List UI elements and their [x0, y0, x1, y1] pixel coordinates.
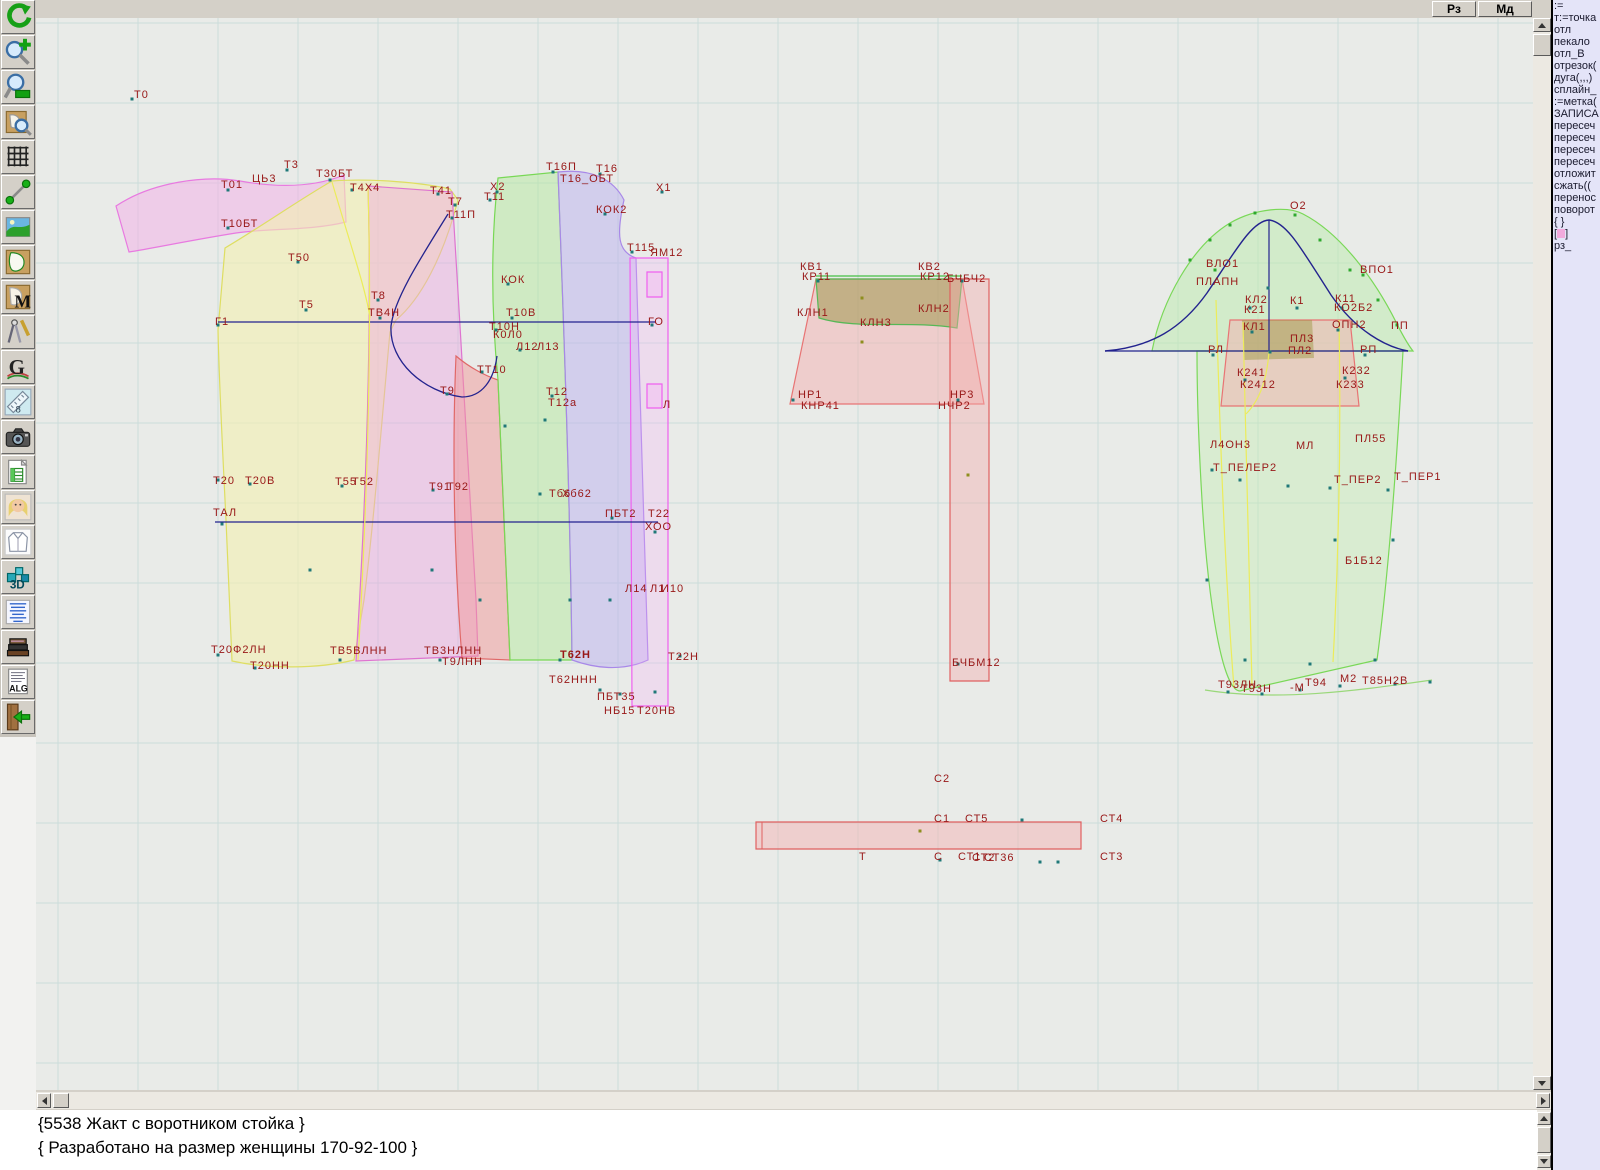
- pattern-point[interactable]: [1254, 212, 1257, 215]
- pattern-point[interactable]: [221, 523, 224, 526]
- pattern-point[interactable]: [1251, 331, 1254, 334]
- pattern-point[interactable]: [939, 859, 942, 862]
- exit-button[interactable]: [1, 700, 35, 734]
- sheet-icon: [4, 458, 32, 486]
- command-item[interactable]: :=: [1553, 0, 1600, 12]
- scroll-down-button[interactable]: [1533, 1076, 1551, 1090]
- pattern-point[interactable]: [249, 483, 252, 486]
- svg-text:G: G: [9, 355, 25, 379]
- pattern-point[interactable]: [861, 297, 864, 300]
- drawing-canvas[interactable]: Т0Т3Т30БТЦЬ3Т01Т4Х4Т41Т7Т10БТТ50Т5Т8ТВ4Н…: [36, 18, 1534, 1090]
- arrow-right-icon: [1541, 1097, 1546, 1105]
- pattern-point[interactable]: [1337, 329, 1340, 332]
- pattern-point[interactable]: [1387, 489, 1390, 492]
- camera-icon: [4, 423, 32, 451]
- pattern-point[interactable]: [489, 199, 492, 202]
- portrait-button[interactable]: [1, 490, 35, 524]
- pattern-point[interactable]: [479, 599, 482, 602]
- pattern-point[interactable]: [1377, 299, 1380, 302]
- pattern-point[interactable]: [1349, 269, 1352, 272]
- pattern-point[interactable]: [1429, 681, 1432, 684]
- command-item[interactable]: рз_: [1553, 240, 1600, 252]
- pattern-point[interactable]: [604, 213, 607, 216]
- pattern-point[interactable]: [544, 419, 547, 422]
- arrow-down-icon: [1538, 1081, 1546, 1086]
- command-panel: :=т:=точкаотлпекалоотл_Вотрезок(дуга(,,,…: [1551, 0, 1600, 1170]
- pattern-point[interactable]: [1341, 307, 1344, 310]
- collar-band[interactable]: [756, 822, 1081, 849]
- command-item[interactable]: перенос: [1553, 192, 1600, 204]
- pattern-point[interactable]: [1394, 683, 1397, 686]
- pattern-point[interactable]: [552, 171, 555, 174]
- pattern-point[interactable]: [957, 399, 960, 402]
- command-item[interactable]: :=метка(: [1553, 96, 1600, 108]
- pattern-point[interactable]: [451, 217, 454, 220]
- pattern-point[interactable]: [286, 169, 289, 172]
- facing-strip[interactable]: [630, 258, 668, 706]
- toolbar-filler: [0, 737, 36, 1110]
- pattern-point[interactable]: [1339, 685, 1342, 688]
- pattern-point[interactable]: [817, 280, 820, 283]
- pattern-button[interactable]: [1, 245, 35, 279]
- threed-button[interactable]: 3D: [1, 560, 35, 594]
- ruler-button[interactable]: 8: [1, 385, 35, 419]
- canvas-hscrollbar[interactable]: [36, 1092, 1551, 1109]
- pattern-point[interactable]: [1021, 819, 1024, 822]
- command-item[interactable]: []: [1553, 228, 1600, 240]
- pattern-point[interactable]: [1229, 224, 1232, 227]
- pattern-point[interactable]: [1364, 354, 1367, 357]
- pattern-point[interactable]: [1294, 214, 1297, 217]
- arrow-up-icon: [1538, 23, 1546, 28]
- pattern-point[interactable]: [611, 517, 614, 520]
- threed-icon: 3D: [4, 563, 32, 591]
- pattern-point[interactable]: [217, 654, 220, 657]
- pattern-point[interactable]: [559, 659, 562, 662]
- pattern-point[interactable]: [217, 479, 220, 482]
- garment-button[interactable]: [1, 525, 35, 559]
- pattern-point[interactable]: [1334, 539, 1337, 542]
- status-line-2: { Разработано на размер женщины 170-92-1…: [38, 1138, 417, 1158]
- svg-text:ALG: ALG: [9, 683, 28, 693]
- command-item[interactable]: дуга(,,,): [1553, 72, 1600, 84]
- pattern-point[interactable]: [481, 371, 484, 374]
- svg-text:3D: 3D: [10, 579, 25, 591]
- pattern-point[interactable]: [1309, 663, 1312, 666]
- pattern-point[interactable]: [437, 193, 440, 196]
- zoom-in-button[interactable]: [1, 35, 35, 69]
- pattern-point[interactable]: [431, 569, 434, 572]
- preview-button[interactable]: [1, 105, 35, 139]
- pattern-point[interactable]: [1244, 659, 1247, 662]
- command-item[interactable]: пересеч: [1553, 120, 1600, 132]
- pattern-point[interactable]: [446, 393, 449, 396]
- text-scroll-up-button[interactable]: [1537, 1112, 1551, 1125]
- zoom-out-button[interactable]: [1, 70, 35, 104]
- left-toolbar: MG83DALG: [0, 0, 36, 737]
- books-button[interactable]: [1, 630, 35, 664]
- pattern-point[interactable]: [1374, 659, 1377, 662]
- mid-strip[interactable]: [950, 279, 989, 681]
- image-button[interactable]: [1, 210, 35, 244]
- pattern-point[interactable]: [654, 531, 657, 534]
- list-icon: [4, 598, 32, 626]
- pattern-point[interactable]: [1344, 377, 1347, 380]
- top-strip: Рз Мд: [36, 0, 1551, 18]
- pattern-point[interactable]: [1227, 691, 1230, 694]
- pattern-cad-window: MG83DALG Рз Мд Т0Т3Т30БТЦЬ3Т01Т4Х4Т41Т7Т…: [0, 0, 1600, 1170]
- arrow-up-icon: [1540, 1116, 1548, 1121]
- pattern-point[interactable]: [957, 663, 960, 666]
- text-scroll-down-button[interactable]: [1537, 1155, 1551, 1168]
- svg-text:8: 8: [16, 405, 21, 415]
- books-icon: [4, 633, 32, 661]
- pattern-point[interactable]: [507, 283, 510, 286]
- sleeve-rect-top[interactable]: [1242, 320, 1314, 360]
- command-item[interactable]: отрезок(: [1553, 60, 1600, 72]
- drafting-button[interactable]: [1, 315, 35, 349]
- pattern-point[interactable]: [1214, 269, 1217, 272]
- command-item[interactable]: отл_В: [1553, 48, 1600, 60]
- arrow-left-icon: [42, 1097, 47, 1105]
- pattern-point[interactable]: [297, 261, 300, 264]
- pattern-point[interactable]: [454, 204, 457, 207]
- scroll-right-button[interactable]: [1536, 1093, 1550, 1108]
- pattern-point[interactable]: [227, 189, 230, 192]
- buttonhole[interactable]: [647, 272, 662, 297]
- segment-button[interactable]: [1, 175, 35, 209]
- pattern-point[interactable]: [341, 485, 344, 488]
- undo-button[interactable]: [1, 0, 35, 34]
- command-item[interactable]: { }: [1553, 216, 1600, 228]
- undo-icon: [4, 3, 32, 31]
- pattern-point[interactable]: [1261, 693, 1264, 696]
- pattern-point[interactable]: [439, 659, 442, 662]
- pattern-point[interactable]: [654, 691, 657, 694]
- sheet-button[interactable]: [1, 455, 35, 489]
- garment-icon: [4, 528, 32, 556]
- command-item[interactable]: сжать((: [1553, 180, 1600, 192]
- command-item[interactable]: поворот: [1553, 204, 1600, 216]
- pattern-point[interactable]: [967, 474, 970, 477]
- command-item[interactable]: пересеч: [1553, 156, 1600, 168]
- pattern-point[interactable]: [1239, 479, 1242, 482]
- pattern-point[interactable]: [309, 569, 312, 572]
- pattern-point[interactable]: [919, 830, 922, 833]
- pattern-point[interactable]: [379, 317, 382, 320]
- pattern-point[interactable]: [1396, 324, 1399, 327]
- pattern-point[interactable]: [861, 341, 864, 344]
- list-button[interactable]: [1, 595, 35, 629]
- drafting-icon: [4, 318, 32, 346]
- scroll-left-button[interactable]: [37, 1093, 51, 1108]
- command-item[interactable]: пересеч: [1553, 144, 1600, 156]
- pattern-point[interactable]: [599, 173, 602, 176]
- pattern-point[interactable]: [651, 324, 654, 327]
- pattern-point[interactable]: [569, 599, 572, 602]
- command-item[interactable]: сплайн_: [1553, 84, 1600, 96]
- preview-icon: [4, 108, 32, 136]
- pattern-point[interactable]: [661, 191, 664, 194]
- pattern-point[interactable]: [254, 667, 257, 670]
- pattern-point[interactable]: [519, 349, 522, 352]
- pattern-point[interactable]: [227, 227, 230, 230]
- command-item[interactable]: отл: [1553, 24, 1600, 36]
- pattern-point[interactable]: [961, 280, 964, 283]
- pattern-point[interactable]: [339, 659, 342, 662]
- status-line-1: {5538 Жакт с воротником стойка }: [38, 1114, 305, 1134]
- pattern-point[interactable]: [1211, 469, 1214, 472]
- pattern-point[interactable]: [504, 425, 507, 428]
- pattern-point[interactable]: [1269, 351, 1272, 354]
- pattern-point[interactable]: [792, 399, 795, 402]
- pattern-point[interactable]: [1299, 689, 1302, 692]
- rz-button[interactable]: Рз: [1432, 1, 1476, 17]
- pattern-point[interactable]: [631, 251, 634, 254]
- svg-text:M: M: [15, 292, 32, 312]
- pattern-point[interactable]: [599, 689, 602, 692]
- text-vscrollbar[interactable]: [1537, 1110, 1551, 1170]
- pattern-point[interactable]: [1392, 539, 1395, 542]
- segment-icon: [4, 178, 32, 206]
- pattern-point[interactable]: [1287, 485, 1290, 488]
- scroll-up-button[interactable]: [1533, 18, 1551, 32]
- image-icon: [4, 213, 32, 241]
- gusset-top[interactable]: [816, 279, 962, 328]
- pattern-point[interactable]: [131, 98, 134, 101]
- pattern-point[interactable]: [1267, 287, 1270, 290]
- canvas-vscrollbar[interactable]: [1533, 18, 1551, 1090]
- ruler-icon: 8: [4, 388, 32, 416]
- pattern-point[interactable]: [1206, 579, 1209, 582]
- g-doc-icon: G: [4, 353, 32, 381]
- pattern-point[interactable]: [351, 189, 354, 192]
- portrait-icon: [4, 493, 32, 521]
- vscroll-thumb[interactable]: [1533, 34, 1551, 56]
- pattern-point[interactable]: [1039, 861, 1042, 864]
- command-item[interactable]: отложит: [1553, 168, 1600, 180]
- buttonhole[interactable]: [647, 384, 662, 408]
- camera-button[interactable]: [1, 420, 35, 454]
- zoom-out-icon: [4, 73, 32, 101]
- pattern-m-icon: M: [4, 283, 32, 311]
- pattern-point[interactable]: [305, 309, 308, 312]
- hscroll-thumb[interactable]: [53, 1093, 69, 1108]
- pattern-point[interactable]: [539, 493, 542, 496]
- text-vscroll-thumb[interactable]: [1537, 1127, 1551, 1153]
- pattern-point[interactable]: [609, 599, 612, 602]
- command-item[interactable]: пекало: [1553, 36, 1600, 48]
- pattern-point[interactable]: [551, 395, 554, 398]
- command-item[interactable]: ЗАПИСА: [1553, 108, 1600, 120]
- pattern-icon: [4, 248, 32, 276]
- pattern-point[interactable]: [511, 317, 514, 320]
- program-text-area[interactable]: {5538 Жакт с воротником стойка } { Разра…: [0, 1110, 1537, 1170]
- alg-icon: ALG: [4, 668, 32, 696]
- pattern-point[interactable]: [217, 324, 220, 327]
- pattern-point[interactable]: [495, 329, 498, 332]
- pattern-point[interactable]: [1362, 274, 1365, 277]
- pattern-point[interactable]: [329, 179, 332, 182]
- pattern-point[interactable]: [1189, 259, 1192, 262]
- pattern-point[interactable]: [1249, 307, 1252, 310]
- pattern-point[interactable]: [1057, 861, 1060, 864]
- exit-icon: [4, 703, 32, 731]
- pattern-point[interactable]: [377, 299, 380, 302]
- pattern-point[interactable]: [1319, 239, 1322, 242]
- command-item[interactable]: т:=точка: [1553, 12, 1600, 24]
- pattern-point[interactable]: [679, 655, 682, 658]
- command-item[interactable]: пересеч: [1553, 132, 1600, 144]
- pattern-m-button[interactable]: M: [1, 280, 35, 314]
- md-button[interactable]: Мд: [1478, 1, 1532, 17]
- grid-icon: [4, 143, 32, 171]
- arrow-down-icon: [1540, 1159, 1548, 1164]
- pattern-point[interactable]: [619, 693, 622, 696]
- pattern-point[interactable]: [432, 489, 435, 492]
- pattern-point[interactable]: [1296, 307, 1299, 310]
- zoom-in-icon: [4, 38, 32, 66]
- pattern-point[interactable]: [1209, 239, 1212, 242]
- pattern-point[interactable]: [1244, 379, 1247, 382]
- g-doc-button[interactable]: G: [1, 350, 35, 384]
- alg-button[interactable]: ALG: [1, 665, 35, 699]
- pattern-point[interactable]: [1329, 487, 1332, 490]
- grid-button[interactable]: [1, 140, 35, 174]
- pattern-point[interactable]: [1212, 354, 1215, 357]
- pattern-point[interactable]: [496, 191, 499, 194]
- pattern-drawing: [36, 18, 1533, 1090]
